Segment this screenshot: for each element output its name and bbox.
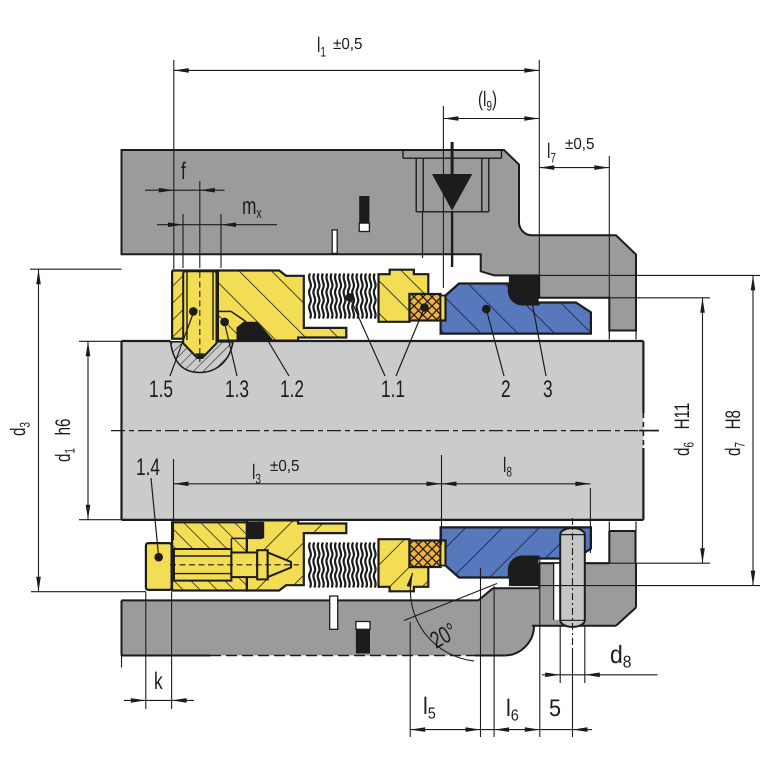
svg-text:d1 h6: d1 h6 bbox=[52, 419, 78, 462]
svg-text:l1: l1 bbox=[317, 34, 326, 60]
svg-text:l5: l5 bbox=[423, 693, 436, 723]
svg-text:d8: d8 bbox=[610, 641, 632, 672]
svg-text:l6: l6 bbox=[506, 695, 519, 725]
svg-text:d6 H11: d6 H11 bbox=[671, 403, 697, 456]
svg-text:1.5: 1.5 bbox=[149, 376, 173, 403]
svg-text:(l9): (l9) bbox=[478, 88, 497, 114]
svg-text:1.1: 1.1 bbox=[381, 376, 405, 403]
svg-text:f: f bbox=[181, 158, 186, 185]
svg-text:d7 H8: d7 H8 bbox=[722, 410, 748, 456]
svg-text:±0,5: ±0,5 bbox=[333, 36, 363, 53]
svg-text:1.2: 1.2 bbox=[280, 376, 304, 403]
svg-text:1.3: 1.3 bbox=[225, 376, 249, 403]
svg-text:1.4: 1.4 bbox=[136, 454, 160, 481]
svg-text:2: 2 bbox=[501, 376, 511, 403]
svg-text:3: 3 bbox=[543, 376, 553, 403]
svg-text:k: k bbox=[154, 668, 163, 695]
svg-text:l7: l7 bbox=[547, 140, 556, 166]
svg-text:d3: d3 bbox=[7, 422, 33, 436]
svg-text:5: 5 bbox=[549, 695, 561, 722]
svg-text:±0,5: ±0,5 bbox=[270, 458, 300, 475]
svg-text:±0,5: ±0,5 bbox=[565, 136, 595, 153]
